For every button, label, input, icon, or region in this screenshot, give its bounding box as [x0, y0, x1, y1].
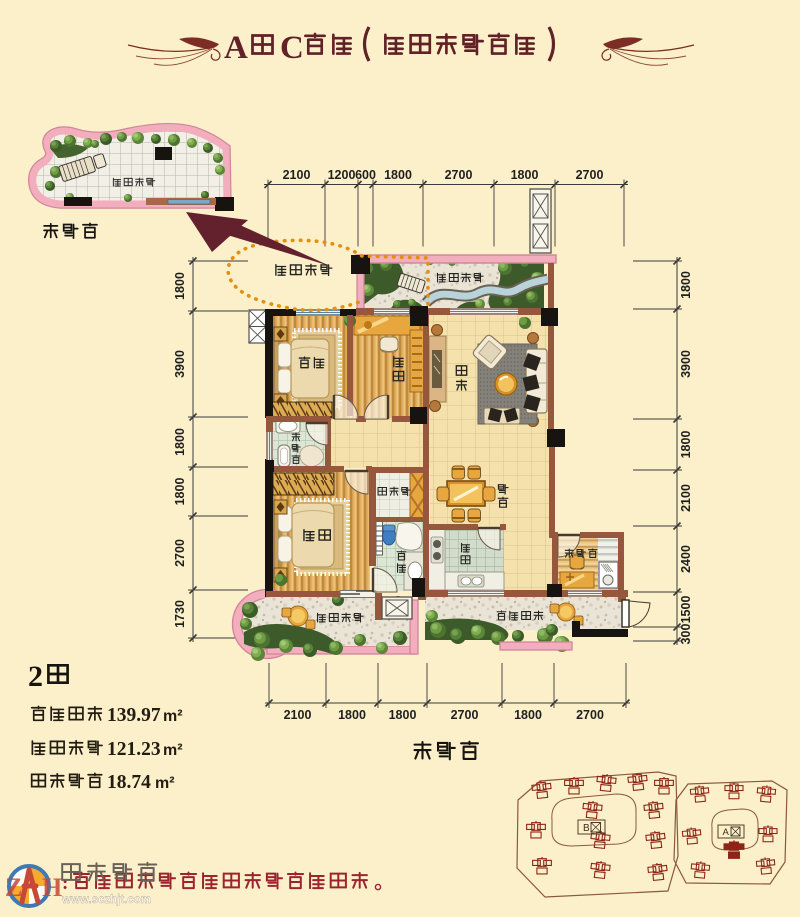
svg-text:C: C: [280, 30, 304, 66]
svg-text:1800: 1800: [173, 478, 187, 506]
svg-text:B: B: [583, 823, 590, 834]
svg-text:m²: m²: [163, 742, 183, 759]
svg-text:600: 600: [355, 168, 376, 182]
svg-text:1800: 1800: [511, 168, 539, 182]
svg-text:2100: 2100: [284, 708, 312, 722]
svg-text:3900: 3900: [679, 350, 693, 378]
svg-text:3900: 3900: [173, 350, 187, 378]
svg-text:2700: 2700: [576, 708, 604, 722]
svg-text:1800: 1800: [173, 272, 187, 300]
svg-text:1800: 1800: [679, 271, 693, 299]
svg-text:m²: m²: [163, 708, 183, 725]
svg-text:Z: Z: [5, 873, 22, 902]
svg-text:18.74: 18.74: [107, 772, 151, 793]
svg-text:2100: 2100: [679, 484, 693, 512]
svg-text:1800: 1800: [173, 428, 187, 456]
svg-text:1800: 1800: [389, 708, 417, 722]
svg-text:1800: 1800: [514, 708, 542, 722]
svg-text:H: H: [42, 873, 62, 902]
svg-text:2400: 2400: [679, 545, 693, 573]
svg-text:www.sczhjt.com: www.sczhjt.com: [61, 894, 151, 906]
svg-text:121.23: 121.23: [107, 739, 161, 760]
svg-text:1800: 1800: [384, 168, 412, 182]
svg-text:2100: 2100: [283, 168, 311, 182]
svg-text:2700: 2700: [451, 708, 479, 722]
svg-text:1730: 1730: [173, 600, 187, 628]
svg-text:A: A: [224, 30, 248, 66]
svg-text:1800: 1800: [679, 431, 693, 459]
svg-text:2: 2: [28, 660, 43, 693]
svg-text:1500: 1500: [679, 596, 693, 624]
svg-text:2700: 2700: [445, 168, 473, 182]
svg-text:2700: 2700: [576, 168, 604, 182]
svg-text:A: A: [723, 827, 730, 838]
svg-text:300: 300: [679, 624, 693, 645]
svg-text:139.97: 139.97: [107, 705, 161, 726]
svg-text:1200: 1200: [328, 168, 356, 182]
svg-text:m²: m²: [155, 775, 175, 792]
svg-text:2700: 2700: [173, 539, 187, 567]
svg-text:1800: 1800: [338, 708, 366, 722]
